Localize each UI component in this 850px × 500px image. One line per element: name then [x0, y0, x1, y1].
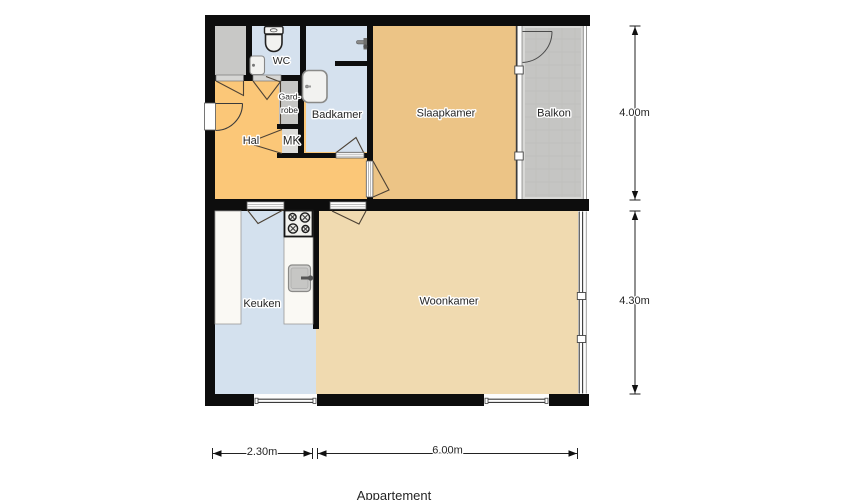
svg-text:MK: MK — [283, 136, 301, 148]
svg-text:Woonkamer: Woonkamer — [419, 296, 478, 308]
svg-text:Balkon: Balkon — [537, 108, 571, 120]
svg-text:4.30m: 4.30m — [619, 295, 650, 307]
svg-text:Gard-: Gard- — [279, 92, 301, 102]
svg-text:Keuken: Keuken — [243, 298, 280, 310]
svg-text:robe: robe — [281, 105, 298, 115]
svg-text:Badkamer: Badkamer — [312, 109, 362, 121]
svg-text:4.00m: 4.00m — [619, 107, 650, 119]
svg-text:Slaapkamer: Slaapkamer — [417, 108, 476, 120]
svg-text:Appartement: Appartement — [357, 488, 432, 500]
svg-text:WC: WC — [273, 55, 291, 67]
svg-text:2.30m: 2.30m — [247, 446, 278, 458]
svg-text:Hal: Hal — [243, 135, 260, 147]
svg-text:6.00m: 6.00m — [432, 445, 463, 457]
